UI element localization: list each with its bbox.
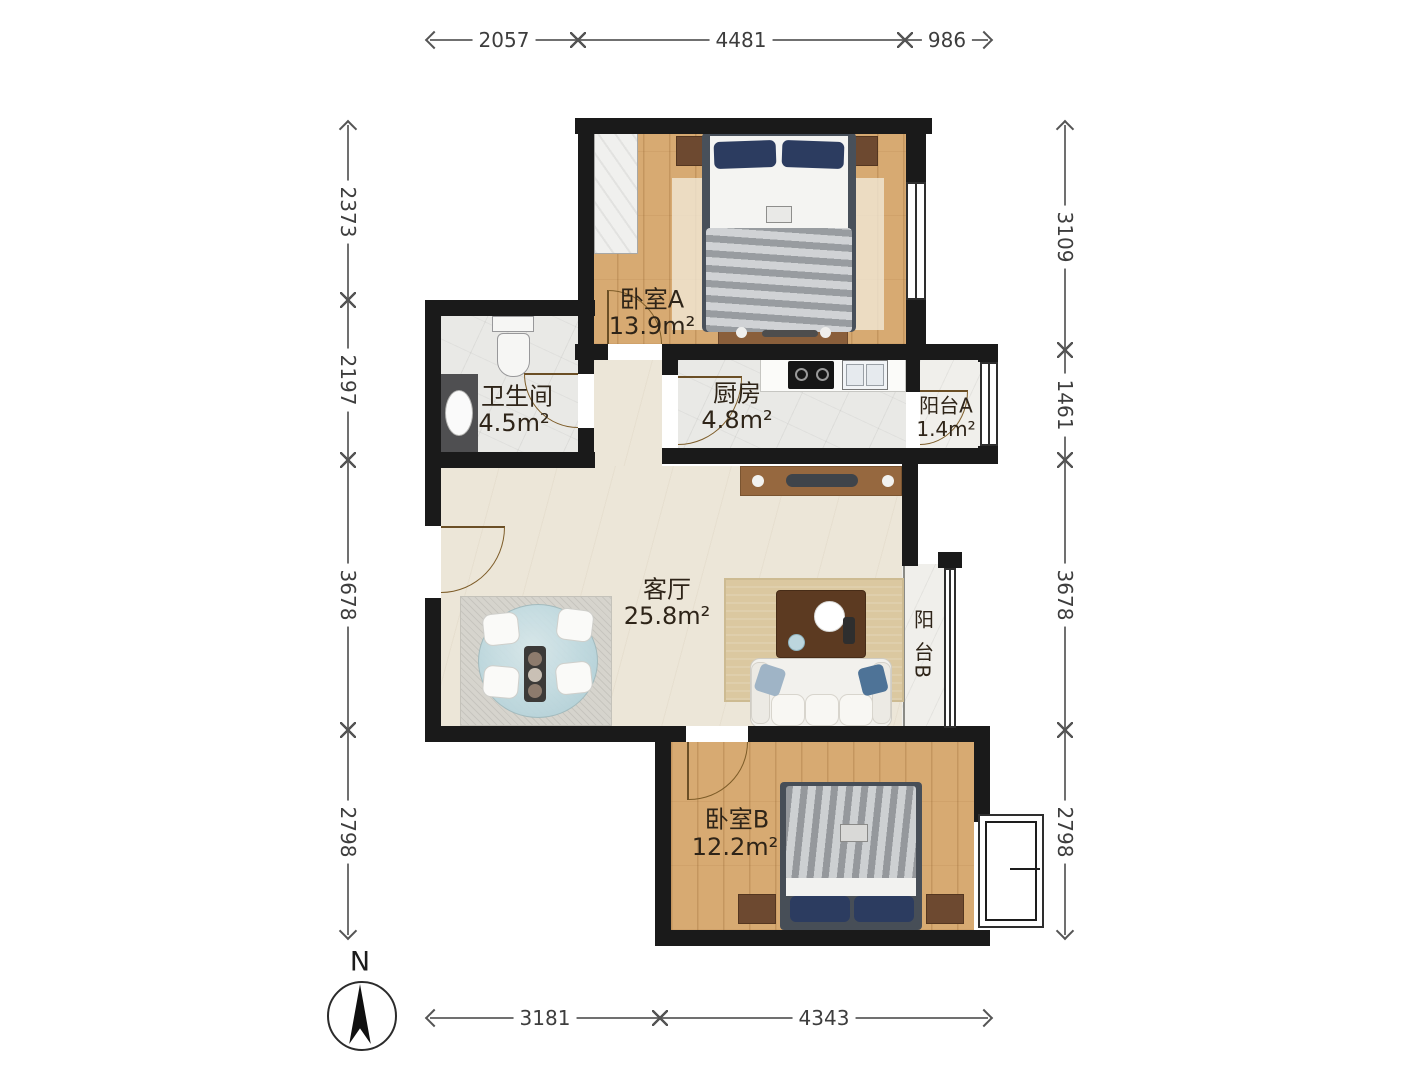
remote-control	[843, 617, 855, 644]
dim-top-3: 986	[922, 28, 972, 52]
bed-b-phone	[840, 824, 868, 842]
kitchen-sink-basin-left	[846, 364, 864, 386]
wardrobe	[594, 132, 638, 254]
balcony-b-window	[944, 568, 956, 728]
dim-right-3: 3678	[1053, 564, 1077, 627]
living-room-name: 客厅	[643, 570, 691, 605]
bed-a-pillow-right	[782, 140, 845, 169]
bay-window-inner-frame	[985, 821, 1037, 921]
hallway-floor	[594, 360, 662, 466]
dresser-a-knob-left	[736, 327, 747, 338]
bathroom-name: 卫生间	[481, 377, 553, 412]
kitchen-sink-basin-right	[866, 364, 884, 386]
dim-left-4: 2798	[336, 801, 360, 864]
living-room-area: 25.8m²	[624, 602, 710, 630]
dining-chair-bottom-right	[554, 660, 593, 696]
dim-top-2: 4481	[710, 28, 773, 52]
wall	[938, 552, 962, 568]
wall	[425, 300, 441, 526]
stove-burner-right	[816, 368, 829, 381]
dimension-tick-icon	[570, 32, 586, 48]
wall	[662, 360, 678, 375]
nightstand-b-right	[926, 894, 964, 924]
arrow-right-icon	[975, 1009, 993, 1027]
dimension-tick-icon	[897, 32, 913, 48]
arrow-left-icon	[425, 1009, 443, 1027]
wall	[425, 598, 441, 742]
bedroom-b-area: 12.2m²	[692, 833, 778, 861]
dimension-tick-icon	[1057, 342, 1073, 358]
dim-right-2: 1461	[1053, 374, 1077, 437]
wall	[662, 448, 998, 464]
wall	[974, 742, 990, 822]
arrow-left-icon	[425, 31, 443, 49]
wall	[944, 726, 964, 742]
floor-plan: 卧室A 13.9m² 卫生间 4.5m² 厨房 4.8m² 阳台A 1.4m² …	[0, 0, 1420, 1068]
bedroom-a-window	[906, 182, 926, 300]
compass-north-label: N	[350, 947, 370, 978]
dim-left-2: 2197	[336, 349, 360, 412]
sofa-cushion-1	[771, 694, 805, 726]
tray-bowl-2	[528, 668, 542, 682]
kitchen-name: 厨房	[713, 374, 761, 409]
arrow-up-icon	[339, 120, 357, 138]
dim-bottom-2: 4343	[793, 1006, 856, 1030]
tray-bowl-1	[528, 652, 542, 666]
bay-window	[978, 814, 1044, 928]
bedroom-a-name: 卧室A	[620, 280, 684, 315]
dimension-tick-icon	[340, 292, 356, 308]
bed-a-blanket	[706, 228, 852, 332]
wall	[978, 446, 998, 456]
dimension-tick-icon	[340, 722, 356, 738]
wall	[655, 930, 990, 946]
wall	[655, 726, 671, 946]
wall	[578, 428, 594, 468]
wall	[662, 344, 998, 360]
dim-bottom-1: 3181	[514, 1006, 577, 1030]
bed-b-sheet	[786, 878, 916, 896]
tray-bowl-3	[528, 684, 542, 698]
wall	[906, 134, 926, 182]
coffee-table-plate	[814, 601, 845, 632]
tv-cabinet-knob-left	[752, 475, 764, 487]
dining-chair-top-right	[555, 607, 595, 643]
coffee-table-cup	[788, 634, 805, 651]
dining-chair-top-left	[481, 611, 520, 647]
dim-left-1: 2373	[336, 181, 360, 244]
dresser-a-handle	[762, 330, 818, 337]
tv-cabinet-knob-right	[882, 475, 894, 487]
nightstand-b-left	[738, 894, 776, 924]
bed-b-pillow-right	[854, 896, 914, 922]
wall	[578, 360, 594, 374]
bed-a-pillow-left	[714, 140, 777, 169]
arrow-down-icon	[339, 922, 357, 940]
wall	[578, 118, 594, 360]
wall	[906, 360, 920, 392]
wall	[902, 464, 918, 566]
dim-right-4: 2798	[1053, 801, 1077, 864]
arrow-up-icon	[1056, 120, 1074, 138]
dimension-tick-icon	[340, 452, 356, 468]
toilet-tank	[492, 316, 534, 332]
balcony-a-area: 1.4m²	[916, 417, 975, 441]
dimension-tick-icon	[652, 1010, 668, 1026]
dining-chair-bottom-left	[482, 664, 521, 699]
arrow-down-icon	[1056, 922, 1074, 940]
dimension-tick-icon	[1057, 722, 1073, 738]
kitchen-area: 4.8m²	[701, 406, 772, 434]
dim-left-3: 3678	[336, 564, 360, 627]
tv	[786, 474, 858, 487]
sofa-cushion-2	[805, 694, 839, 726]
balcony-b-name: 阳 台B	[909, 609, 938, 681]
bedroom-a-area: 13.9m²	[609, 312, 695, 340]
balcony-a-window	[980, 362, 998, 446]
dim-right-1: 3109	[1053, 206, 1077, 269]
wall	[437, 452, 595, 468]
arrow-right-icon	[975, 31, 993, 49]
wall	[575, 118, 932, 134]
bed-a-phone	[766, 206, 792, 223]
sofa-cushion-3	[839, 694, 873, 726]
dimension-tick-icon	[1057, 452, 1073, 468]
wall	[425, 726, 686, 742]
toilet-bowl	[497, 333, 530, 377]
wall	[978, 352, 998, 362]
balcony-a-name: 阳台A	[919, 390, 973, 419]
bay-window-mullion	[1010, 868, 1040, 870]
dim-top-1: 2057	[473, 28, 536, 52]
dresser-a-knob-right	[820, 327, 831, 338]
wall	[425, 300, 595, 316]
bed-b-pillow-left	[790, 896, 850, 922]
bedroom-b-name: 卧室B	[705, 800, 769, 835]
bathroom-area: 4.5m²	[478, 409, 549, 437]
stove-burner-left	[795, 368, 808, 381]
bathroom-sink	[445, 390, 473, 436]
